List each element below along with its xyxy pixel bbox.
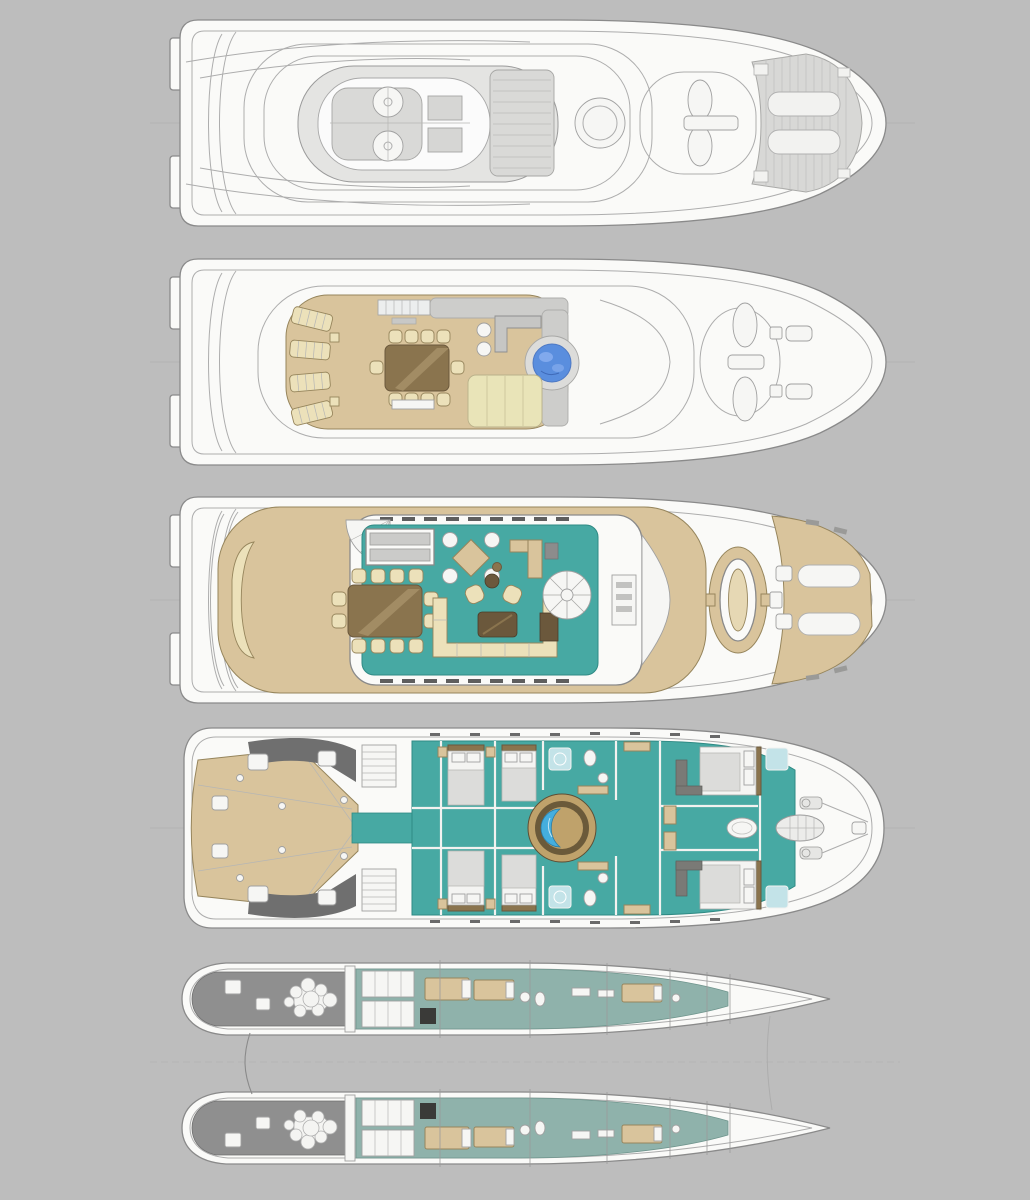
corridor-carpet bbox=[352, 813, 414, 843]
starboard-hull bbox=[182, 1089, 830, 1167]
atrium-plunge-pool bbox=[528, 794, 596, 862]
foyer-table bbox=[776, 815, 824, 841]
staircase bbox=[362, 745, 396, 787]
galley-counters bbox=[366, 529, 434, 565]
coffee-table bbox=[478, 612, 517, 637]
yacht-deck-plans-image bbox=[0, 0, 1030, 1200]
deck-plans-svg bbox=[0, 0, 1030, 1200]
guest-bed bbox=[502, 745, 536, 801]
view-hulls-plan bbox=[182, 960, 830, 1167]
hatched-roof-pad bbox=[490, 70, 554, 176]
stern-cross-brace bbox=[245, 1033, 252, 1094]
service-bench bbox=[392, 400, 434, 409]
bow-cross-brace bbox=[767, 1016, 772, 1110]
staircase bbox=[362, 869, 396, 911]
guest-bed bbox=[502, 855, 536, 911]
side-table bbox=[485, 574, 499, 588]
view-lower-deck-plan bbox=[184, 728, 884, 928]
funnel-ring bbox=[575, 98, 625, 148]
beach-club-platform bbox=[191, 738, 358, 918]
center-bathtub bbox=[727, 818, 757, 838]
bar-stool bbox=[477, 323, 491, 337]
bow-sun-pads bbox=[752, 54, 862, 192]
sun-pads bbox=[468, 375, 542, 427]
spiral-staircase bbox=[543, 571, 591, 619]
bar-stool bbox=[477, 342, 491, 356]
view-sun-roof-plan bbox=[170, 20, 886, 226]
cabinet bbox=[540, 613, 558, 641]
guest-bed bbox=[448, 851, 484, 911]
port-hull bbox=[182, 960, 830, 1038]
bow-sun-beds bbox=[770, 516, 872, 684]
side-table bbox=[493, 563, 502, 572]
view-flybridge-deck-plan bbox=[170, 259, 886, 465]
view-main-deck-plan bbox=[170, 497, 886, 703]
guest-bed bbox=[448, 745, 484, 805]
